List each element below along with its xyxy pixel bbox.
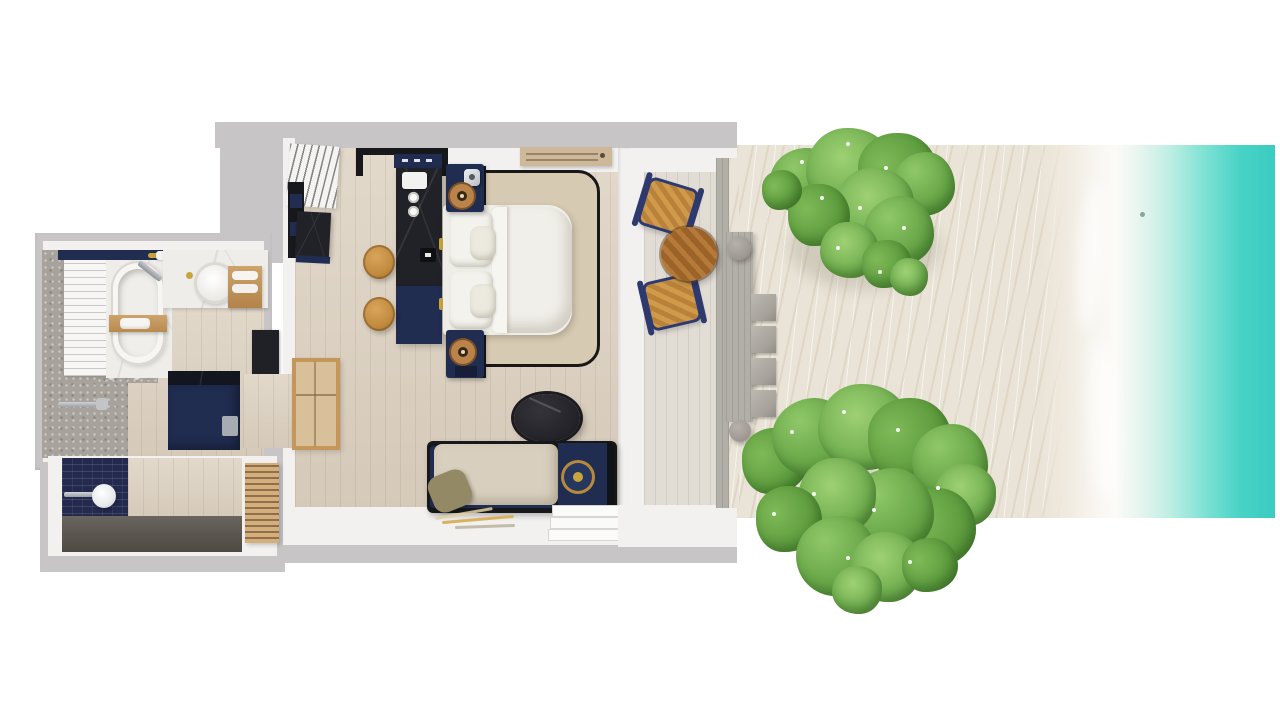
ac-vent-slat — [526, 159, 598, 161]
tub-towel — [120, 318, 150, 329]
towel-ladder — [64, 256, 108, 376]
desk-switch — [426, 159, 432, 162]
stepping-paver — [751, 390, 776, 417]
wall-bottom — [262, 545, 737, 563]
desk-tissue — [425, 253, 431, 257]
outdoor-shower-floor — [62, 516, 242, 552]
nightstand-bottom-item — [455, 366, 477, 377]
desk-cup — [408, 192, 419, 203]
walkin-shower-floor — [42, 375, 128, 458]
desk-cup — [408, 206, 419, 217]
desk-stool-2 — [363, 297, 395, 331]
shelf-towel — [232, 271, 258, 280]
luggage-rack-divider — [314, 362, 316, 446]
luggage-rack — [292, 358, 340, 450]
shelf-towel — [232, 284, 258, 293]
duvet-fold — [492, 207, 507, 333]
bathroom-doorway — [243, 374, 295, 448]
writing-desk-base — [396, 286, 442, 344]
timber-wall — [128, 458, 242, 520]
ladder-shelf-item — [290, 194, 302, 208]
oval-coffee-table — [514, 394, 580, 442]
desk-switch — [414, 159, 420, 162]
bathtub-basin — [118, 269, 158, 357]
ac-ceiling-vent — [520, 147, 612, 166]
luggage-rack-shelf-line — [296, 394, 336, 396]
toilet-cistern — [222, 416, 238, 436]
rain-shower-head — [92, 484, 116, 508]
concrete-bench — [726, 232, 753, 422]
kettle-lid — [469, 174, 475, 180]
terrace-bottom-wall — [618, 505, 737, 547]
round-stone-top — [727, 236, 751, 260]
bathroom-door-leaf — [252, 330, 279, 374]
desk-switch — [402, 159, 408, 162]
desk-tray — [402, 172, 427, 189]
swimmer-speck — [1140, 212, 1145, 217]
desk-stool-1 — [363, 245, 395, 279]
sink-tap — [186, 272, 193, 279]
stepping-paver — [751, 294, 776, 321]
round-teak-table — [661, 227, 717, 281]
pillow-small-top — [470, 226, 496, 260]
toilet-counter — [168, 371, 240, 386]
coffee-tray-top — [450, 184, 474, 208]
side-table-candle — [573, 472, 583, 482]
stepping-paver — [751, 326, 776, 353]
floorplan-canvas — [0, 0, 1280, 720]
ocean — [1040, 145, 1275, 518]
ac-vent-slat — [526, 153, 598, 155]
minibar-counter — [295, 211, 331, 259]
ac-vent-knob — [600, 153, 605, 158]
shower-fixture-head — [96, 398, 108, 410]
stepping-paver — [751, 358, 776, 385]
stone-wall-strip — [42, 250, 66, 380]
desk-canopy-left-bar — [356, 148, 363, 176]
pillow-small-bottom — [470, 284, 496, 318]
coffee-tray-bottom — [451, 340, 475, 364]
slatted-screen — [245, 463, 279, 543]
